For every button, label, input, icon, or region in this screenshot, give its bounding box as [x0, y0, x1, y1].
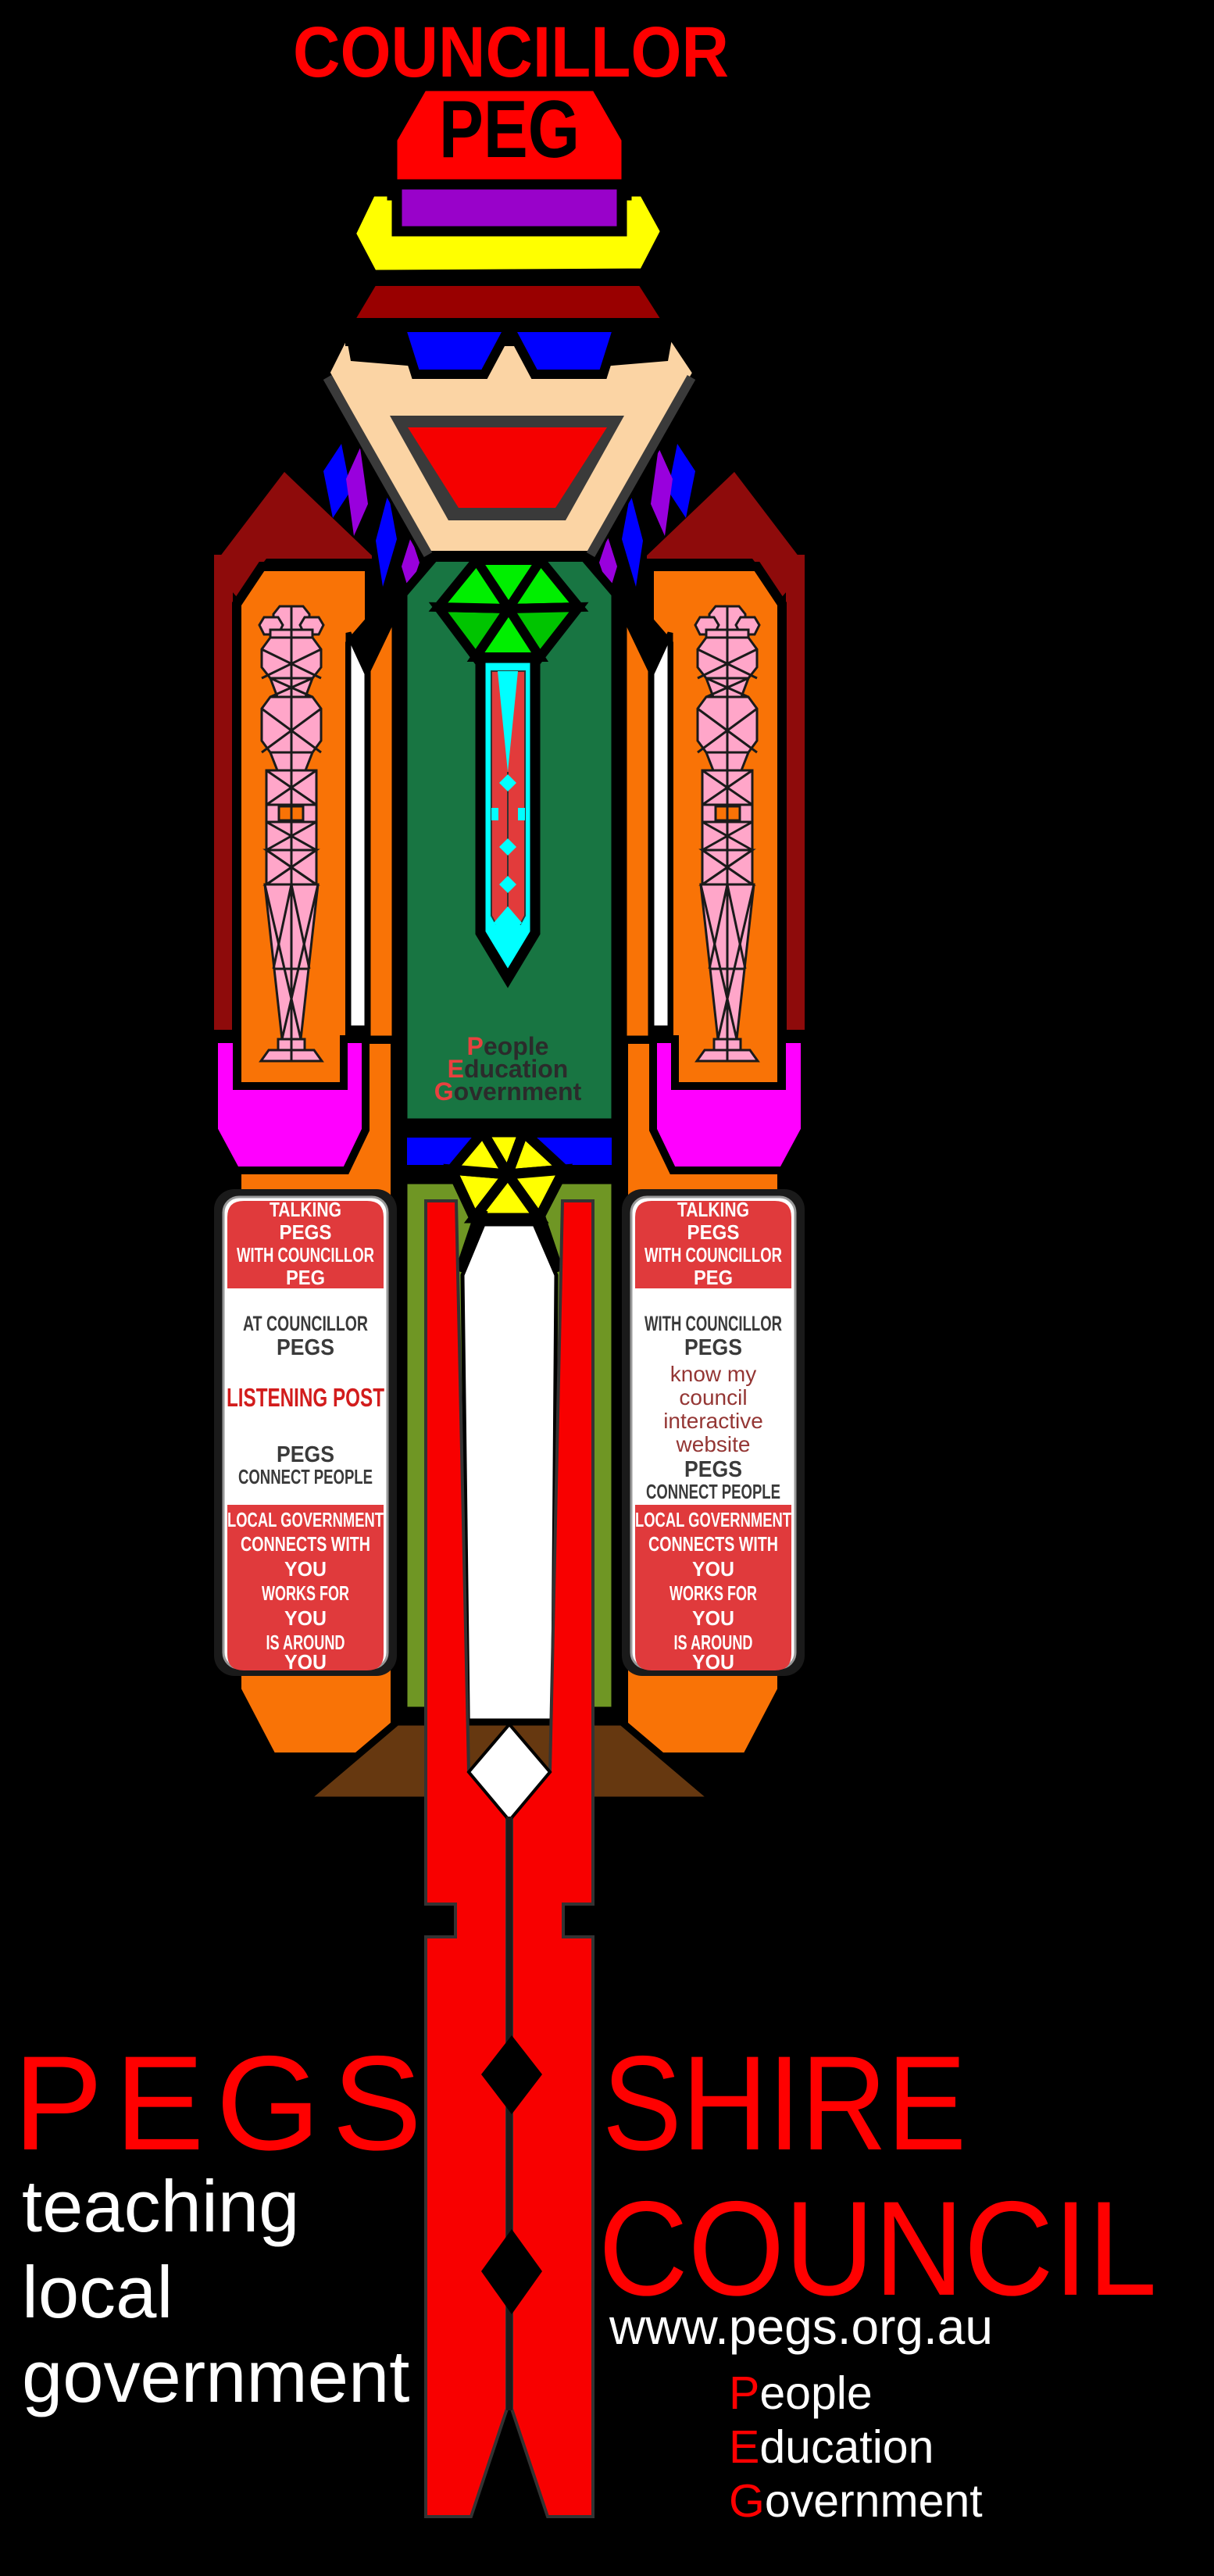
svg-text:CONNECT PEOPLE: CONNECT PEOPLE — [238, 1465, 373, 1488]
svg-text:LOCAL GOVERNMENT: LOCAL GOVERNMENT — [635, 1508, 791, 1531]
svg-text:council: council — [679, 1385, 747, 1409]
svg-text:AT COUNCILLOR: AT COUNCILLOR — [243, 1312, 368, 1335]
svg-text:PEGS: PEGS — [684, 1457, 742, 1482]
svg-text:CONNECTS WITH: CONNECTS WITH — [241, 1532, 370, 1556]
svg-text:YOU: YOU — [284, 1606, 327, 1630]
svg-text:TALKING: TALKING — [677, 1198, 749, 1221]
svg-text:COUNCILLOR: COUNCILLOR — [293, 13, 729, 92]
svg-text:PEGS: PEGS — [277, 1335, 334, 1360]
svg-text:LISTENING POST: LISTENING POST — [227, 1383, 384, 1412]
svg-text:TALKING: TALKING — [270, 1198, 341, 1221]
svg-text:WORKS FOR: WORKS FOR — [669, 1581, 757, 1605]
svg-text:PEG: PEG — [439, 84, 580, 175]
svg-text:PEGS: PEGS — [280, 1220, 332, 1244]
svg-text:WORKS FOR: WORKS FOR — [262, 1581, 349, 1605]
svg-text:Government: Government — [434, 1077, 582, 1106]
svg-text:YOU: YOU — [284, 1557, 327, 1581]
svg-text:website: website — [676, 1432, 751, 1456]
svg-text:PEG: PEG — [694, 1266, 733, 1289]
svg-text:PEGS: PEGS — [277, 1442, 334, 1467]
svg-text:know my: know my — [670, 1362, 756, 1386]
svg-text:teaching: teaching — [22, 2165, 299, 2247]
svg-text:government: government — [22, 2335, 409, 2417]
svg-text:Government: Government — [729, 2475, 983, 2527]
svg-text:PEGS: PEGS — [684, 1335, 742, 1360]
svg-text:YOU: YOU — [692, 1557, 734, 1581]
svg-text:YOU: YOU — [284, 1650, 327, 1674]
svg-text:WITH COUNCILLOR: WITH COUNCILLOR — [644, 1243, 782, 1267]
svg-text:WITH COUNCILLOR: WITH COUNCILLOR — [237, 1243, 374, 1267]
svg-text:local: local — [22, 2251, 173, 2333]
svg-text:CONNECT PEOPLE: CONNECT PEOPLE — [646, 1480, 780, 1503]
svg-text:YOU: YOU — [692, 1606, 734, 1630]
svg-text:WITH COUNCILLOR: WITH COUNCILLOR — [644, 1312, 782, 1335]
svg-text:SHIRE: SHIRE — [602, 2028, 966, 2178]
svg-text:PEG: PEG — [286, 1266, 325, 1289]
svg-text:www.pegs.org.au: www.pegs.org.au — [609, 2299, 993, 2355]
svg-text:LOCAL GOVERNMENT: LOCAL GOVERNMENT — [227, 1508, 384, 1531]
svg-text:PEGS: PEGS — [13, 2028, 434, 2178]
svg-text:Education: Education — [729, 2421, 934, 2473]
svg-text:YOU: YOU — [692, 1650, 734, 1674]
svg-text:interactive: interactive — [663, 1409, 763, 1433]
svg-text:People: People — [729, 2367, 873, 2419]
svg-text:CONNECTS WITH: CONNECTS WITH — [648, 1532, 778, 1556]
svg-text:PEGS: PEGS — [687, 1220, 740, 1244]
